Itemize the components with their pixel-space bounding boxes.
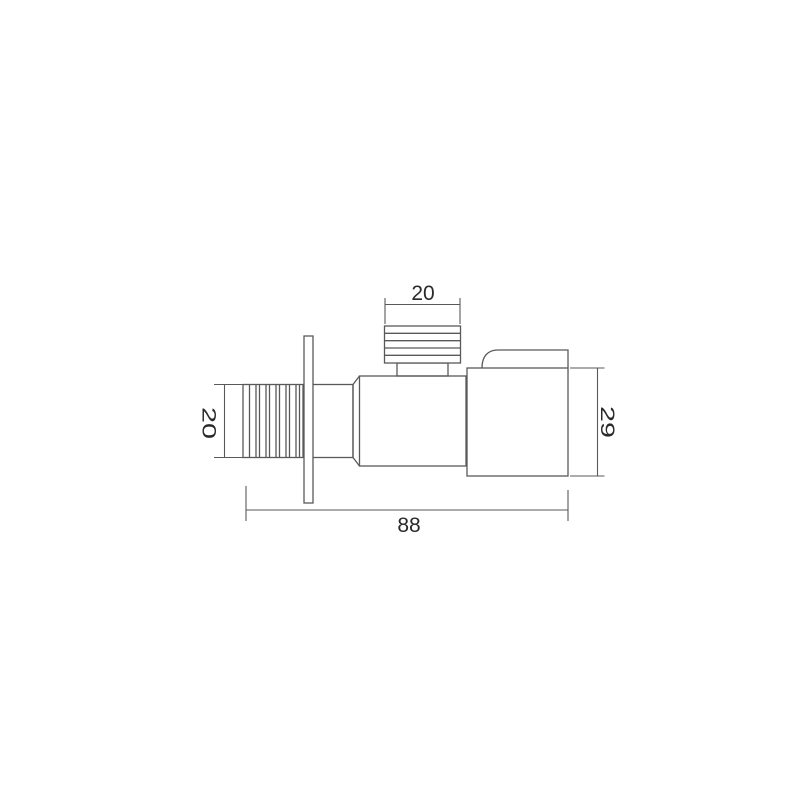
dimension-right-label: 29 <box>596 406 617 438</box>
thread-lines <box>250 385 304 458</box>
handle-knob <box>385 326 461 363</box>
handle-neck <box>397 363 448 376</box>
body-outline <box>360 376 467 466</box>
dimension-right: 29 <box>570 368 617 476</box>
dimension-top: 20 <box>385 282 460 324</box>
threaded-inlet-pipe <box>243 385 353 458</box>
flange-plate <box>304 336 313 503</box>
dimension-bottom: 88 <box>246 486 568 537</box>
dimension-bottom-label: 88 <box>397 514 420 537</box>
outlet-section <box>467 350 568 476</box>
valve-technical-drawing: 20 20 29 88 <box>0 0 800 800</box>
drawing-canvas: 20 20 29 88 <box>0 0 800 800</box>
dimension-left-label: 20 <box>198 407 219 439</box>
dimension-top-label: 20 <box>411 282 434 305</box>
handle <box>385 326 461 376</box>
outlet-cap <box>482 350 568 368</box>
body-taper-top <box>353 376 360 385</box>
wall-flange <box>304 336 313 503</box>
outlet-body <box>467 368 568 476</box>
body-taper-bottom <box>353 458 360 467</box>
dimension-left: 20 <box>198 385 244 458</box>
valve-body <box>353 376 466 466</box>
